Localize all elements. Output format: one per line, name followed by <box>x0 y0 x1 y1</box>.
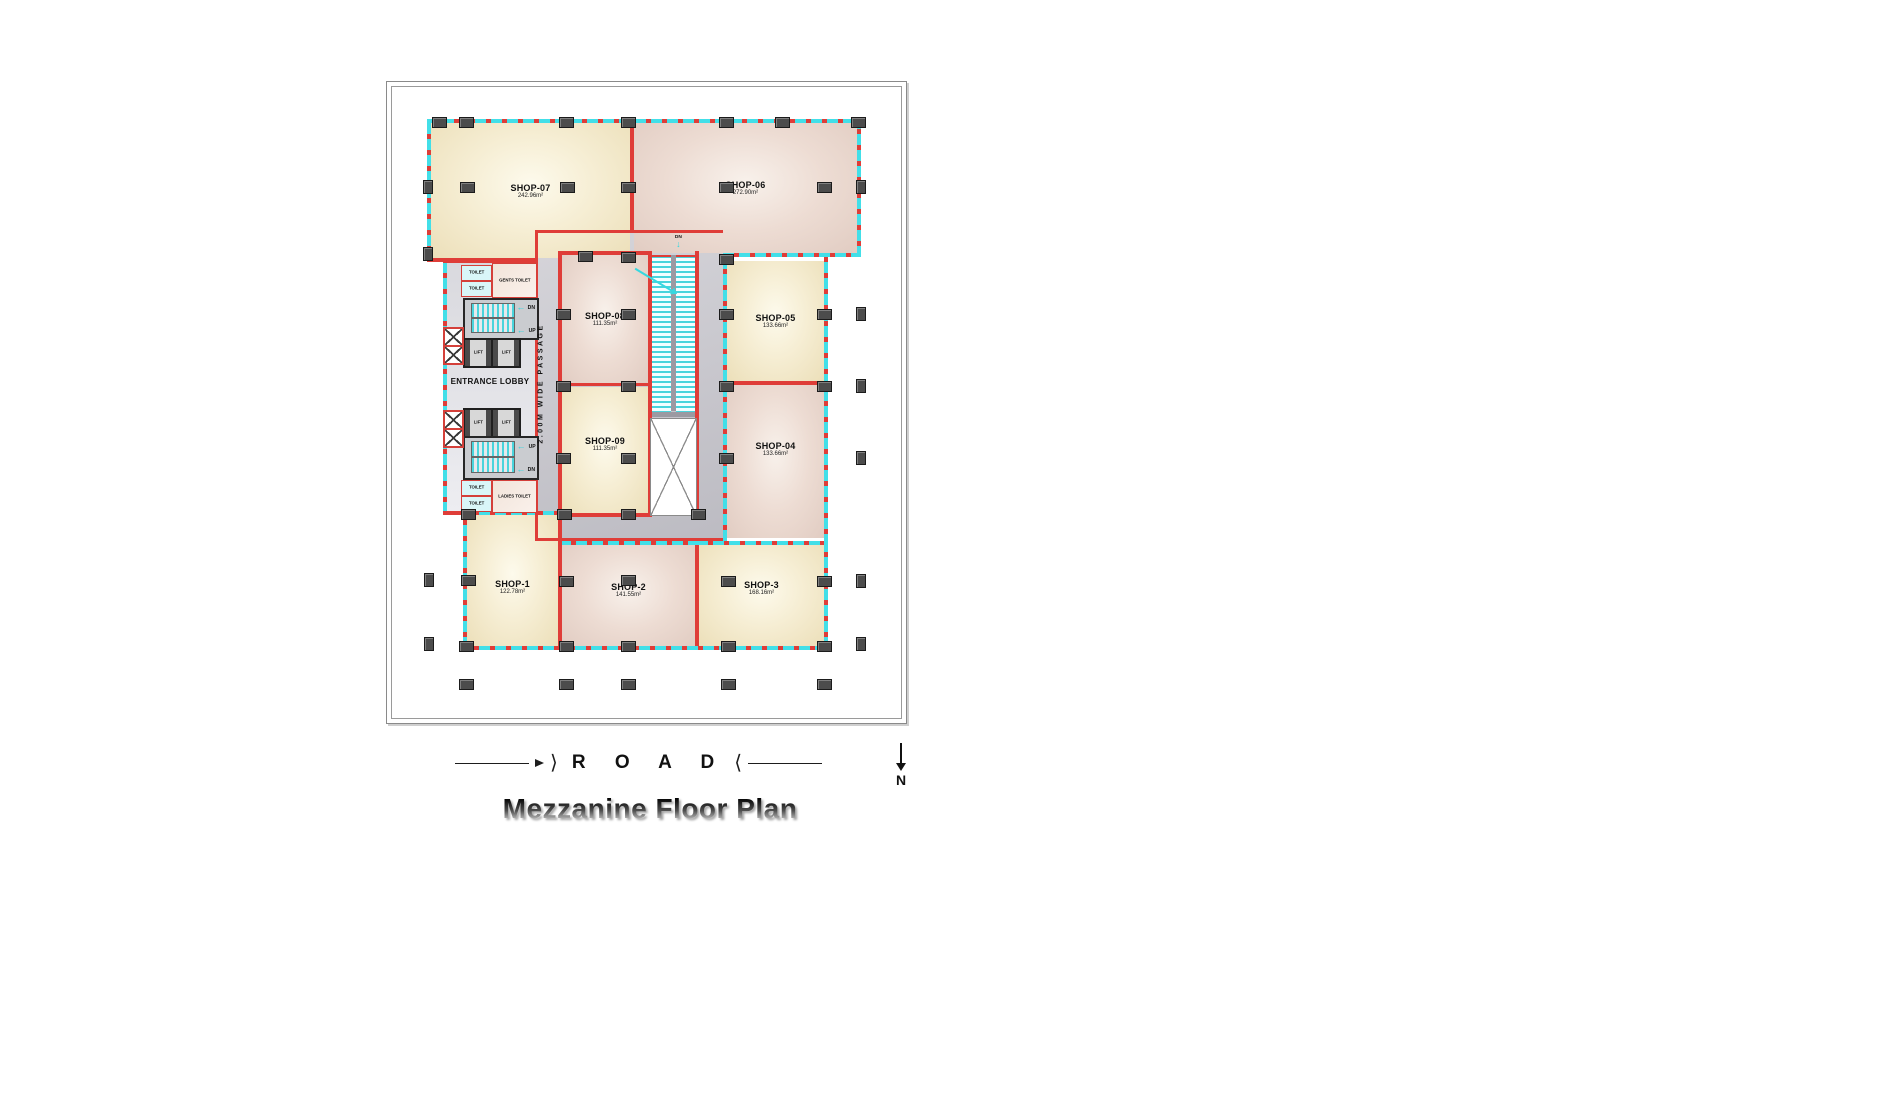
road-line-left <box>455 763 529 764</box>
escalator-run-right <box>676 255 695 413</box>
stair-flight <box>471 318 515 333</box>
column <box>719 117 734 128</box>
escalator-void-cross <box>650 418 697 516</box>
column <box>856 637 866 651</box>
stair-dn-label: DN <box>528 467 535 472</box>
shop-04-area: 133.66m² <box>763 451 788 457</box>
column <box>556 309 571 320</box>
lift-label: LIFT <box>501 351 510 355</box>
column <box>691 509 706 520</box>
column <box>459 117 474 128</box>
road-bracket-left: ⟩ <box>550 753 558 773</box>
column <box>557 509 572 520</box>
lift-label: LIFT <box>473 351 482 355</box>
column <box>719 254 734 265</box>
column <box>817 309 832 320</box>
column <box>817 182 832 193</box>
lift: LIFT <box>463 408 493 438</box>
shop-07-area: 242.96m² <box>518 193 543 199</box>
shop-08-area: 111.35m² <box>593 321 617 327</box>
wall-segment <box>558 383 652 386</box>
column <box>578 251 593 262</box>
column <box>556 381 571 392</box>
north-indicator: N <box>886 743 916 788</box>
gents-toilet-label: GENTS TOILET <box>499 278 530 282</box>
column <box>719 381 734 392</box>
stair-flight <box>471 441 515 457</box>
column <box>432 117 447 128</box>
stairwell-lower: ← UP ← DN <box>463 436 539 480</box>
column <box>719 182 734 193</box>
wall-segment <box>824 257 828 545</box>
column <box>559 641 574 652</box>
left-arrow-icon: ← <box>517 326 526 335</box>
column <box>856 574 866 588</box>
lift-label: LIFT <box>501 421 510 425</box>
shop-04-label: SHOP-04 <box>756 441 796 451</box>
shop-3-label: SHOP-3 <box>744 580 779 590</box>
escalator-dn-label: DN <box>675 235 682 240</box>
wall-segment <box>630 119 634 230</box>
wall-segment <box>560 541 697 545</box>
wall-segment <box>723 261 727 541</box>
column <box>559 576 574 587</box>
shop-09-label: SHOP-09 <box>585 436 625 446</box>
shop-05-label: SHOP-05 <box>756 313 796 323</box>
road-annotation: ⟩ R O A D ⟨ <box>455 752 822 774</box>
toilet-label: TOILET <box>469 502 484 506</box>
column <box>817 641 832 652</box>
lift-label: LIFT <box>473 421 482 425</box>
column <box>556 453 571 464</box>
wall-segment <box>695 545 699 646</box>
column <box>856 379 866 393</box>
north-arrowhead-icon <box>896 763 906 771</box>
left-arrow-icon: ← <box>516 465 525 474</box>
toilet-label: TOILET <box>469 271 484 275</box>
stair-direction: ← UP <box>517 442 536 451</box>
column <box>851 117 866 128</box>
column <box>621 182 636 193</box>
column <box>423 180 433 194</box>
floor-plan: SHOP-07 242.96m² SHOP-06 272.90m² SHOP-0… <box>386 81 905 722</box>
wall-segment <box>463 646 828 650</box>
column <box>460 182 475 193</box>
wall-segment <box>558 251 652 255</box>
column <box>817 679 832 690</box>
escalator-direction: DN ↓ <box>674 234 683 249</box>
drawing-title: Mezzanine Floor Plan <box>470 793 830 825</box>
stair-up-label: UP <box>528 444 535 449</box>
column <box>559 117 574 128</box>
column <box>621 117 636 128</box>
wall-segment <box>537 538 723 541</box>
column <box>621 679 636 690</box>
north-arrow-icon <box>900 743 902 763</box>
left-arrow-icon: ← <box>517 442 526 451</box>
column <box>459 679 474 690</box>
stair-direction: ← DN <box>516 303 536 312</box>
column <box>461 509 476 520</box>
wall-segment <box>697 541 824 545</box>
stairwell-upper: ← DN ← UP <box>463 298 539 340</box>
lift: LIFT <box>491 338 521 368</box>
column <box>621 575 636 586</box>
shop-2-area: 141.55m² <box>616 592 641 598</box>
column <box>721 641 736 652</box>
column <box>621 309 636 320</box>
down-arrow-icon: ↓ <box>676 240 681 249</box>
column <box>721 576 736 587</box>
right-arrow-icon <box>535 759 544 767</box>
wall-segment <box>824 545 828 648</box>
toilet-room: TOILET <box>461 265 492 281</box>
road-bracket-right: ⟨ <box>734 753 742 773</box>
ladies-toilet-room: LADIES TOILET <box>492 480 537 513</box>
stair-direction: ← UP <box>517 326 536 335</box>
shop-3-area: 168.16m² <box>749 590 774 596</box>
column <box>856 451 866 465</box>
road-line-right <box>748 763 822 764</box>
room-shop-1: SHOP-1 122.78m² <box>467 515 558 646</box>
stair-dn-label: DN <box>528 305 535 310</box>
column <box>424 573 434 587</box>
entrance-lobby-label: ENTRANCE LOBBY <box>443 377 537 386</box>
column <box>621 381 636 392</box>
wall-segment <box>723 253 861 257</box>
passage-label: 2.00M WIDE PASSAGE <box>538 319 549 449</box>
wall-segment <box>537 230 723 233</box>
shop-05-area: 133.66m² <box>763 323 788 329</box>
room-shop-04: SHOP-04 133.66m² <box>727 385 824 538</box>
column <box>424 637 434 651</box>
shop-08-label: SHOP-08 <box>585 311 625 321</box>
toilet-label: TOILET <box>469 486 484 490</box>
ladies-toilet-label: LADIES TOILET <box>498 494 530 498</box>
north-label: N <box>886 772 916 788</box>
column <box>817 381 832 392</box>
column <box>856 180 866 194</box>
wall-segment <box>443 262 447 513</box>
left-arrow-icon: ← <box>516 303 525 312</box>
toilet-room: TOILET <box>461 480 492 496</box>
shop-1-area: 122.78m² <box>500 589 525 595</box>
escalator-landing <box>652 412 695 417</box>
column <box>856 307 866 321</box>
room-shop-3: SHOP-3 168.16m² <box>699 545 824 646</box>
column <box>621 453 636 464</box>
road-label: R O A D <box>572 752 726 774</box>
column <box>817 576 832 587</box>
room-shop-05: SHOP-05 133.66m² <box>727 261 824 381</box>
column <box>621 509 636 520</box>
column <box>621 252 636 263</box>
stair-flight <box>471 303 515 318</box>
shop-07-label: SHOP-07 <box>511 183 551 193</box>
room-shop-09: SHOP-09 111.35m² <box>562 387 648 513</box>
toilet-room: TOILET <box>461 281 492 297</box>
room-shop-2: SHOP-2 141.55m² <box>562 545 695 646</box>
lift: LIFT <box>463 338 493 368</box>
column <box>560 182 575 193</box>
column <box>461 575 476 586</box>
column <box>559 679 574 690</box>
column <box>459 641 474 652</box>
duct-shaft <box>443 345 464 365</box>
wall-segment <box>427 119 861 123</box>
shop-06-area: 272.90m² <box>733 190 758 196</box>
toilet-label: TOILET <box>469 287 484 291</box>
stair-direction: ← DN <box>516 465 536 474</box>
wall-segment <box>727 381 824 385</box>
shop-1-label: SHOP-1 <box>495 579 530 589</box>
shop-09-area: 111.35m² <box>593 446 617 452</box>
duct-shaft <box>443 327 464 347</box>
lift: LIFT <box>491 408 521 438</box>
stair-up-label: UP <box>528 328 535 333</box>
column <box>721 679 736 690</box>
wall-segment <box>558 513 652 517</box>
column <box>775 117 790 128</box>
column <box>719 309 734 320</box>
gents-toilet-room: GENTS TOILET <box>492 263 537 298</box>
stair-flight <box>471 457 515 473</box>
column <box>621 641 636 652</box>
column <box>423 247 433 261</box>
duct-shaft <box>443 428 464 448</box>
column <box>719 453 734 464</box>
duct-shaft <box>443 410 464 430</box>
